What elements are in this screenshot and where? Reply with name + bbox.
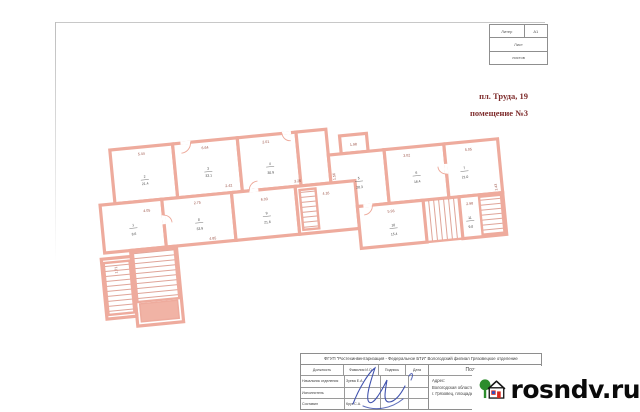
svg-text:16.4: 16.4 — [414, 179, 421, 184]
svg-text:8.6: 8.6 — [131, 232, 136, 236]
dim-label: 2.42 — [225, 183, 232, 188]
svg-text:21.4: 21.4 — [142, 181, 149, 186]
house-door — [497, 391, 501, 398]
organization-name: ФГУП "Ростехинвентаризация - Федеральное… — [301, 354, 541, 365]
corner-stamp-table: Литер А1 Лист листов — [489, 24, 548, 65]
dim-label: 3.02 — [403, 153, 410, 158]
dim-label: 1.71 — [114, 266, 119, 273]
svg-text:20.3: 20.3 — [356, 185, 363, 190]
svg-text:15.4: 15.4 — [391, 232, 398, 237]
dim-label: 5.44 — [138, 152, 145, 157]
role-cell: Начальник отделения — [301, 376, 345, 386]
dim-label: 5.05 — [465, 147, 472, 152]
stamp-liter-label: Литер — [490, 25, 525, 37]
stamp-liter-value: А1 — [525, 25, 547, 37]
svg-text:9.8: 9.8 — [468, 225, 473, 229]
col-header-role: Должность — [301, 365, 344, 375]
annotation-premise: помещение №3 — [450, 109, 528, 118]
dim-label: 2.01 — [262, 140, 269, 145]
dim-label: 2.98 — [466, 201, 473, 206]
dim-label: 1.98 — [350, 142, 357, 147]
svg-text:33.1: 33.1 — [205, 173, 212, 178]
house-window — [492, 391, 496, 395]
dim-label: 3.26 — [294, 179, 301, 184]
svg-text:10: 10 — [391, 223, 395, 227]
role-cell: Составил — [301, 399, 345, 409]
annotation-street: пл. Труда, 19 — [450, 92, 528, 101]
dim-label: 6.03 — [261, 197, 268, 202]
stamp-sheets-label: листов — [490, 52, 547, 64]
dim-label: 1.56 — [332, 173, 337, 180]
svg-text:21.0: 21.0 — [462, 175, 469, 180]
watermark: rosndv.ru — [472, 366, 640, 412]
dim-label: 4.16 — [322, 191, 329, 196]
dim-label: 6.64 — [201, 146, 208, 151]
dim-label: 1.43 — [494, 183, 499, 190]
stair-landing — [140, 300, 180, 322]
watermark-text: rosndv.ru — [511, 375, 640, 404]
dim-label: 4.85 — [209, 236, 216, 241]
tree-trunk — [484, 389, 486, 398]
handwritten-signature — [345, 358, 417, 412]
scanned-floor-plan-page: 5.44 6.64 2.01 1.98 3.02 5.05 4.05 2.75 … — [0, 0, 640, 412]
dim-label: 4.05 — [143, 208, 150, 213]
svg-text:30.9: 30.9 — [267, 170, 274, 175]
svg-text:11: 11 — [468, 216, 472, 220]
stamp-sheet-label: Лист — [490, 38, 547, 50]
svg-text:33.9: 33.9 — [196, 226, 203, 231]
dim-label: 5.93 — [387, 209, 394, 214]
svg-text:21.6: 21.6 — [264, 220, 271, 225]
role-cell: Исполнитель — [301, 388, 345, 398]
dim-label: 2.75 — [194, 201, 201, 206]
address-annotation: пл. Труда, 19 помещение №3 — [450, 92, 528, 118]
rosndv-logo-icon — [479, 370, 506, 408]
